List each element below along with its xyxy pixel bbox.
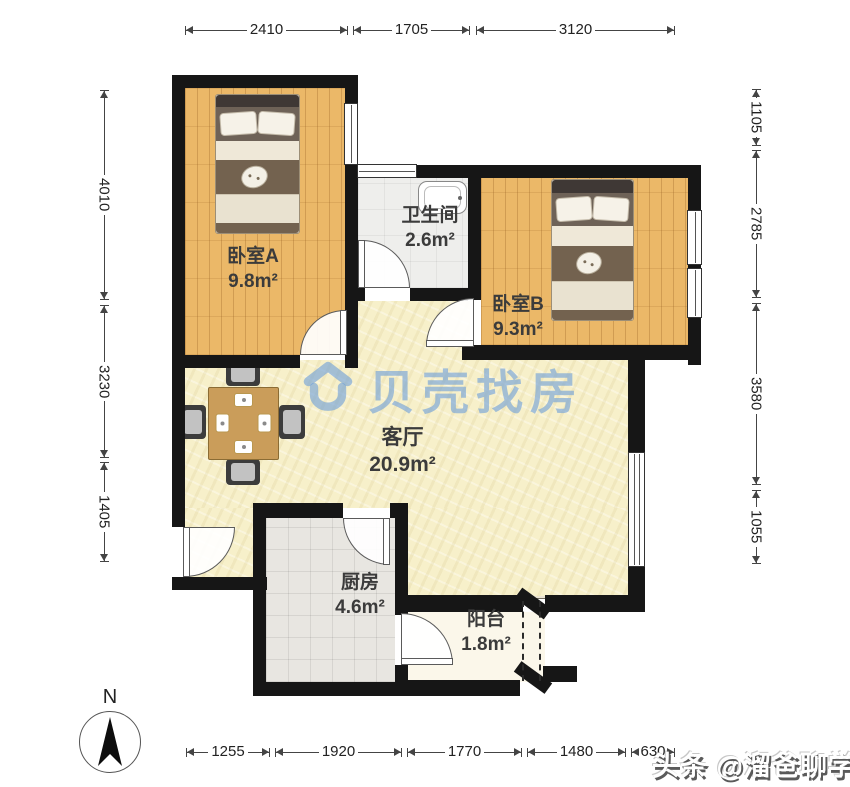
dim-line — [187, 752, 208, 753]
dim-value: 1105 — [748, 98, 765, 136]
bed-pillow-zone — [216, 107, 299, 140]
dim-tick — [100, 457, 109, 458]
dim-tick — [625, 748, 626, 757]
dim-line — [756, 414, 757, 484]
window — [357, 164, 417, 178]
wall-segment — [545, 595, 645, 612]
credit-watermark: 头条 @溜爸聊学区 — [652, 744, 850, 783]
dim-tick — [401, 748, 402, 757]
room-name: 阳台 — [430, 608, 542, 633]
living-room-floor-right — [408, 508, 628, 596]
dim-tick — [100, 299, 109, 300]
dim-tick — [674, 26, 675, 35]
dim-line — [354, 30, 392, 31]
room-area: 2.6m² — [375, 229, 485, 254]
dim-value: 4010 — [96, 175, 113, 214]
bed-foot — [216, 223, 299, 233]
dim-line — [104, 463, 105, 492]
wall-segment — [172, 75, 358, 88]
dimension-bottom-3: 1770 — [407, 744, 522, 760]
dim-tick — [100, 561, 109, 562]
room-name: 厨房 — [305, 571, 415, 596]
dim-value: 1480 — [557, 744, 596, 760]
dim-line — [632, 752, 637, 753]
wall-segment — [628, 360, 645, 452]
dining-table — [208, 387, 279, 460]
window — [344, 103, 358, 165]
compass: N — [78, 686, 142, 773]
dim-tick — [752, 297, 761, 298]
door-leaf — [358, 240, 365, 288]
dimension-right-2: 2785 — [748, 150, 764, 298]
floor-plan-canvas: 卧室A 9.8m² 卫生间 2.6m² 卧室B 9.3m² 客厅 20.9m² … — [0, 0, 850, 787]
dim-line — [756, 304, 757, 374]
room-name: 卧室B — [462, 293, 574, 318]
bed-headboard — [552, 180, 633, 193]
wall-segment — [408, 680, 520, 696]
bed-headboard — [216, 95, 299, 107]
wall-segment — [345, 288, 365, 301]
dim-line — [286, 30, 347, 31]
room-name: 卫生间 — [375, 204, 485, 229]
dimension-top-1: 2410 — [185, 22, 348, 38]
dim-tick — [752, 145, 761, 146]
compass-n-label: N — [78, 686, 142, 709]
bed-blanket — [216, 160, 299, 195]
dim-line — [104, 91, 105, 175]
dim-line — [276, 752, 319, 753]
dim-line — [756, 151, 757, 204]
dim-line — [756, 244, 757, 297]
pillow — [555, 196, 593, 222]
room-label-balcony: 阳台 1.8m² — [430, 608, 542, 657]
bed-tray — [238, 162, 270, 191]
room-area: 20.9m² — [345, 451, 460, 478]
wall-segment — [172, 355, 300, 368]
dim-tick — [521, 748, 522, 757]
wall-segment — [172, 75, 185, 527]
wall-segment — [688, 165, 701, 365]
entry-door-leaf — [183, 527, 190, 577]
bed-blanket — [552, 246, 633, 281]
dimension-bottom-2: 1920 — [275, 744, 402, 760]
north-arrow-icon — [79, 711, 141, 773]
dining-set — [180, 360, 305, 485]
dim-tick — [347, 26, 348, 35]
plate — [234, 393, 253, 407]
dim-value: 1920 — [319, 744, 358, 760]
plate — [258, 414, 272, 433]
dim-line — [477, 30, 556, 31]
door-leaf — [383, 518, 390, 565]
dimension-left-3: 1405 — [96, 462, 112, 562]
dim-line — [756, 491, 757, 507]
dim-value: 1255 — [208, 744, 247, 760]
room-label-living: 客厅 20.9m² — [345, 424, 460, 479]
window — [687, 210, 702, 265]
dining-chair — [279, 405, 305, 439]
dim-tick — [752, 484, 761, 485]
dim-line — [186, 30, 247, 31]
wall-segment — [480, 165, 701, 178]
dimension-right-3: 3580 — [748, 303, 764, 485]
dim-value: 1705 — [392, 22, 431, 38]
wall-segment — [345, 75, 358, 105]
dim-line — [104, 215, 105, 299]
dim-line — [756, 90, 757, 98]
door-leaf — [401, 658, 453, 665]
dimension-bottom-4: 1480 — [527, 744, 626, 760]
room-area: 9.3m² — [462, 318, 574, 343]
window — [687, 268, 702, 318]
dim-value: 3230 — [96, 362, 113, 401]
dim-value: 1405 — [96, 492, 113, 531]
dim-tick — [269, 748, 270, 757]
door-leaf — [340, 310, 347, 355]
dim-value: 2410 — [247, 22, 286, 38]
wall-segment — [462, 345, 701, 360]
dining-chair — [226, 459, 260, 485]
room-name: 卧室A — [198, 245, 308, 270]
room-area: 9.8m² — [198, 270, 308, 295]
dim-line — [484, 752, 521, 753]
dim-line — [358, 752, 401, 753]
dim-line — [528, 752, 557, 753]
dim-value: 2785 — [748, 204, 765, 243]
dimension-left-2: 3230 — [96, 305, 112, 458]
dim-line — [104, 401, 105, 457]
pillow — [257, 111, 295, 137]
dim-line — [756, 547, 757, 563]
dimension-top-2: 1705 — [353, 22, 470, 38]
wall-segment — [253, 503, 343, 518]
bed-pillow-zone — [552, 193, 633, 227]
dimension-top-3: 3120 — [476, 22, 675, 38]
window — [628, 452, 645, 567]
bed-a — [215, 94, 300, 234]
dim-line — [104, 532, 105, 561]
pillow — [592, 196, 630, 222]
room-label-kitchen: 厨房 4.6m² — [305, 571, 415, 620]
dim-value: 3580 — [748, 374, 765, 413]
plate — [216, 414, 230, 433]
dim-line — [248, 752, 269, 753]
plate — [234, 440, 253, 454]
room-area: 4.6m² — [305, 596, 415, 621]
dimension-bottom-1: 1255 — [186, 744, 270, 760]
room-label-bathroom: 卫生间 2.6m² — [375, 204, 485, 253]
dim-tick — [752, 563, 761, 564]
dim-value: 1055 — [748, 507, 765, 546]
dim-value: 1770 — [445, 744, 484, 760]
dim-line — [756, 137, 757, 145]
wall-segment — [253, 503, 266, 696]
dim-value: 3120 — [556, 22, 595, 38]
room-area: 1.8m² — [430, 633, 542, 658]
wall-segment — [253, 682, 413, 696]
wall-segment — [543, 666, 577, 682]
dimension-right-1: 1105 — [748, 89, 764, 146]
bed-duvet — [216, 194, 299, 224]
room-name: 客厅 — [345, 424, 460, 451]
dim-line — [104, 306, 105, 362]
room-label-bedroom-a: 卧室A 9.8m² — [198, 245, 308, 294]
dim-line — [431, 30, 469, 31]
room-label-bedroom-b: 卧室B 9.3m² — [462, 293, 574, 342]
bed-tray — [573, 249, 605, 278]
dim-line — [596, 752, 625, 753]
dim-line — [408, 752, 445, 753]
dim-line — [595, 30, 674, 31]
dimension-right-4: 1055 — [748, 490, 764, 564]
dimension-left-1: 4010 — [96, 90, 112, 300]
dim-tick — [469, 26, 470, 35]
pillow — [219, 111, 257, 137]
